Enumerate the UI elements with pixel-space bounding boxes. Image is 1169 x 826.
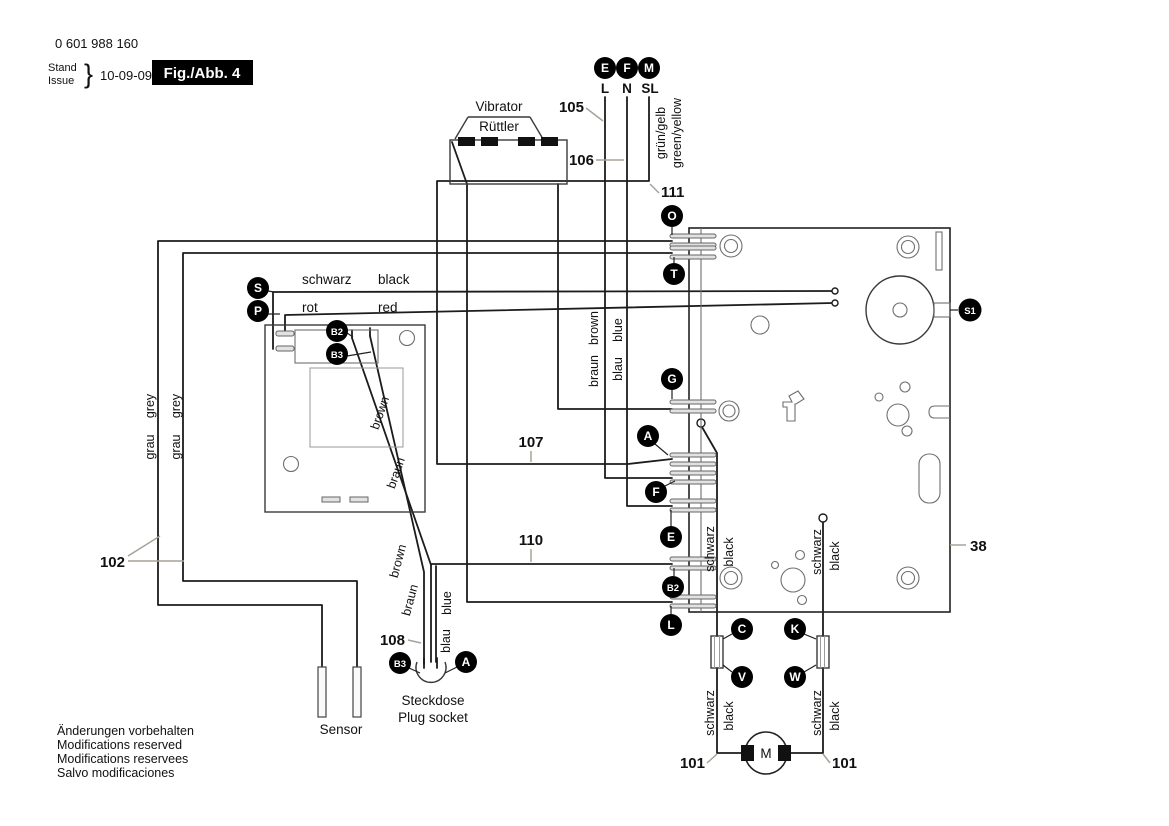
supply-terminals: E F M L N SL bbox=[594, 57, 660, 96]
label-braun-socket: braun bbox=[399, 583, 421, 618]
point-B2-plate: B2 bbox=[667, 583, 679, 594]
point-W: W bbox=[789, 670, 801, 684]
plate-slot bbox=[919, 454, 940, 503]
wire-end-node bbox=[832, 288, 838, 294]
plate-hole bbox=[751, 316, 769, 334]
label-schwarz-motor-right: schwarz bbox=[810, 690, 824, 736]
switch-contact-node bbox=[819, 514, 827, 522]
figure-label: Fig./Abb. 4 bbox=[164, 65, 241, 82]
point-T: T bbox=[670, 267, 678, 281]
line-N-label: N bbox=[622, 81, 632, 96]
point-B2-pcb: B2 bbox=[331, 327, 343, 338]
point-L: L bbox=[667, 618, 674, 632]
label-blue-socket: blue bbox=[440, 591, 454, 615]
label-schwarz-plate-left: schwarz bbox=[703, 526, 717, 572]
ref-105: 105 bbox=[559, 99, 584, 116]
label-black-plate-left: black bbox=[722, 537, 736, 567]
label-grau-2: grau bbox=[169, 434, 183, 459]
wires bbox=[158, 97, 838, 753]
vibrator-label-en: Vibrator bbox=[475, 99, 523, 114]
sensor-bar bbox=[318, 667, 326, 717]
mount-hole bbox=[720, 567, 742, 589]
mount-hole bbox=[719, 401, 739, 421]
socket-label-en: Plug socket bbox=[398, 710, 468, 725]
footer-line-4: Salvo modificaciones bbox=[57, 766, 174, 780]
ref-107: 107 bbox=[518, 434, 543, 451]
point-E-plate: E bbox=[667, 530, 675, 544]
mount-hole bbox=[725, 572, 738, 585]
earth-color-en: green/yellow bbox=[670, 97, 684, 168]
vibrator-pad bbox=[541, 137, 558, 146]
dial-S1-tab bbox=[934, 303, 950, 317]
label-grau-1: grau bbox=[143, 434, 157, 459]
point-G: G bbox=[667, 372, 676, 386]
plate-hole bbox=[781, 568, 805, 592]
terminal-F-label: F bbox=[623, 61, 630, 75]
wiring-diagram: 0 601 988 160 Stand Issue } 10-09-09 Fig… bbox=[0, 0, 1169, 826]
footer-line-3: Modifications reservees bbox=[57, 752, 188, 766]
plate-hole bbox=[772, 562, 779, 569]
wire-end-node bbox=[832, 300, 838, 306]
socket-label-de: Steckdose bbox=[401, 693, 464, 708]
plate-hole bbox=[900, 382, 910, 392]
mount-hole bbox=[725, 240, 738, 253]
vibrator-body bbox=[450, 140, 567, 184]
footer-disclaimer: Änderungen vorbehalten Modifications res… bbox=[57, 724, 194, 780]
point-B3-socket: B3 bbox=[394, 659, 406, 670]
label-blue-mid: blue bbox=[611, 318, 625, 342]
pcb-hole bbox=[284, 457, 299, 472]
plate-edge-slot bbox=[929, 406, 950, 418]
plate-hole bbox=[875, 393, 883, 401]
point-S1: S1 bbox=[964, 306, 976, 317]
plate-hole bbox=[887, 404, 909, 426]
ref-110: 110 bbox=[519, 532, 543, 549]
dial-S1-center bbox=[893, 303, 907, 317]
reference-leaders bbox=[128, 108, 966, 763]
brace-glyph: } bbox=[84, 59, 93, 89]
point-K: K bbox=[791, 622, 800, 636]
label-schwarz-plate-right: schwarz bbox=[810, 529, 824, 575]
mount-hole bbox=[897, 567, 919, 589]
label-black-plate-right: black bbox=[828, 541, 842, 571]
mount-hole bbox=[902, 572, 915, 585]
part-number: 0 601 988 160 bbox=[55, 36, 138, 51]
ref-101-left: 101 bbox=[680, 755, 705, 772]
vibrator-pad bbox=[518, 137, 535, 146]
sensor-bar bbox=[353, 667, 361, 717]
vibrator-pad bbox=[458, 137, 475, 146]
vibrator-label-de: Rüttler bbox=[479, 119, 519, 134]
label-grey-2: grey bbox=[169, 393, 183, 418]
footer-line-2: Modifications reserved bbox=[57, 738, 182, 752]
plate-hole bbox=[796, 551, 805, 560]
mount-hole bbox=[723, 405, 735, 417]
wire-pcb-B2-diagonal bbox=[352, 338, 431, 565]
mount-hole bbox=[897, 236, 919, 258]
label-brown-socket: brown bbox=[387, 543, 409, 580]
label-black: black bbox=[378, 272, 410, 287]
label-black-motor-left: black bbox=[722, 701, 736, 731]
socket-arc bbox=[416, 662, 446, 682]
label-schwarz: schwarz bbox=[302, 272, 352, 287]
dial-S1 bbox=[866, 276, 934, 344]
wire-rot-P bbox=[285, 303, 833, 333]
stand-label: Stand bbox=[48, 62, 77, 74]
motor-brush-right bbox=[778, 745, 791, 761]
footer-line-1: Änderungen vorbehalten bbox=[57, 724, 194, 738]
point-F-plate: F bbox=[652, 485, 659, 499]
point-S: S bbox=[254, 281, 262, 295]
plate-hole bbox=[902, 426, 912, 436]
wire-pcb-B3-diagonal bbox=[370, 336, 424, 664]
label-grey-1: grey bbox=[143, 393, 157, 418]
issue-label: Issue bbox=[48, 75, 74, 87]
mount-hole bbox=[720, 235, 742, 257]
pcb-pad bbox=[350, 497, 368, 502]
plate-slot bbox=[936, 232, 942, 270]
label-blau-socket: blau bbox=[439, 629, 453, 653]
ref-101-right: 101 bbox=[832, 755, 857, 772]
connector-lug-P bbox=[276, 331, 294, 336]
ref-111: 111 bbox=[661, 184, 684, 201]
label-blau-mid: blau bbox=[611, 357, 625, 381]
pcb-hole bbox=[400, 331, 415, 346]
connection-point-leaders bbox=[268, 227, 958, 673]
earth-color-de: grün/gelb bbox=[654, 107, 668, 159]
label-braun-mid: braun bbox=[587, 355, 601, 387]
motor-brush-left bbox=[741, 745, 754, 761]
label-schwarz-motor-left: schwarz bbox=[703, 690, 717, 736]
pointer-shape bbox=[783, 391, 804, 421]
wire-vibrator-left bbox=[452, 142, 672, 602]
ref-102: 102 bbox=[100, 554, 125, 571]
sensor-label: Sensor bbox=[320, 722, 363, 737]
terminal-block-left bbox=[711, 636, 723, 668]
label-red: red bbox=[378, 300, 398, 315]
vibrator-component: Vibrator Rüttler bbox=[450, 99, 567, 184]
diagram-svg: 0 601 988 160 Stand Issue } 10-09-09 Fig… bbox=[0, 0, 1169, 826]
terminal-E-label: E bbox=[601, 61, 609, 75]
plate-hole bbox=[798, 596, 807, 605]
label-rot: rot bbox=[302, 300, 318, 315]
line-L-label: L bbox=[601, 81, 609, 96]
ref-108: 108 bbox=[380, 632, 405, 649]
label-brown-mid: brown bbox=[587, 311, 601, 345]
line-SL-label: SL bbox=[641, 81, 658, 96]
point-A-socket: A bbox=[462, 655, 471, 669]
terminal-M-label: M bbox=[644, 61, 654, 75]
point-O: O bbox=[667, 209, 676, 223]
sensor-component: Sensor bbox=[318, 667, 363, 737]
mount-hole bbox=[902, 241, 915, 254]
terminal-block-right bbox=[817, 636, 829, 668]
point-C: C bbox=[738, 622, 747, 636]
ref-106: 106 bbox=[569, 152, 594, 169]
issue-date: 10-09-09 bbox=[100, 68, 152, 83]
motor-label: M bbox=[760, 746, 771, 761]
vibrator-pad bbox=[481, 137, 498, 146]
label-black-motor-right: black bbox=[828, 701, 842, 731]
point-A-plate: A bbox=[644, 429, 653, 443]
point-V: V bbox=[738, 670, 746, 684]
connector-lug-S bbox=[276, 346, 294, 351]
point-P: P bbox=[254, 304, 262, 318]
point-B3-pcb: B3 bbox=[331, 350, 343, 361]
ref-38: 38 bbox=[970, 538, 987, 555]
wire-schwarz-S bbox=[273, 291, 833, 349]
pcb-pad bbox=[322, 497, 340, 502]
